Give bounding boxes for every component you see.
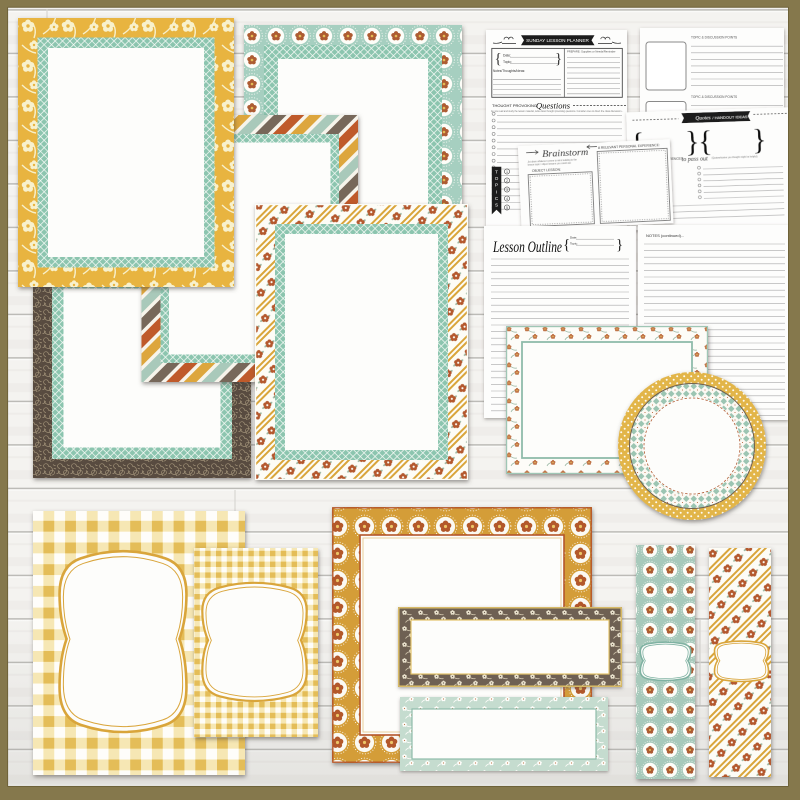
svg-text:TOPIC & DISCUSSION POINTS: TOPIC & DISCUSSION POINTS xyxy=(691,95,737,99)
svg-text:{: { xyxy=(698,125,713,158)
svg-text:Date:: Date: xyxy=(570,236,577,240)
svg-text:to pass out: to pass out xyxy=(682,156,709,163)
svg-text:As you read and study the less: As you read and study the lesson materia… xyxy=(491,110,624,113)
svg-text:SUNDAY LESSON PLANNER: SUNDAY LESSON PLANNER xyxy=(526,38,589,43)
svg-text:Questions: Questions xyxy=(536,101,571,111)
svg-text:Topic:: Topic: xyxy=(570,242,578,246)
svg-text:Lesson Outline: Lesson Outline xyxy=(492,239,562,256)
svg-text:TOPIC & DISCUSSION POINTS: TOPIC & DISCUSSION POINTS xyxy=(691,36,737,40)
svg-text:}: } xyxy=(752,123,767,156)
svg-text:THOUGHT PROVOKING: THOUGHT PROVOKING xyxy=(492,103,537,108)
svg-text:4: 4 xyxy=(506,197,508,201)
svg-text:}: } xyxy=(555,51,562,67)
svg-text:T: T xyxy=(495,170,498,175)
svg-text:S: S xyxy=(495,203,498,208)
svg-text:Brainstorm: Brainstorm xyxy=(542,147,589,159)
svg-text:NOTES (continued)...: NOTES (continued)... xyxy=(646,233,684,238)
svg-text:Notes/Thoughts/Ideas:: Notes/Thoughts/Ideas: xyxy=(493,69,525,73)
svg-text:5: 5 xyxy=(506,206,508,210)
svg-text:Date:: Date: xyxy=(503,54,511,58)
svg-text:Topic:: Topic: xyxy=(503,60,512,64)
svg-text:{: { xyxy=(495,51,502,67)
svg-text:O: O xyxy=(495,176,499,181)
svg-text:2: 2 xyxy=(506,179,508,183)
svg-text:3: 3 xyxy=(506,188,508,192)
svg-text:Quotes: Quotes xyxy=(695,115,710,121)
svg-text:}: } xyxy=(616,237,623,253)
svg-text:I: I xyxy=(496,189,497,194)
svg-text:1: 1 xyxy=(506,170,508,174)
svg-text:PREPARE: Supplies or Needs/Rem: PREPARE: Supplies or Needs/Reminder xyxy=(567,49,616,53)
svg-text:P: P xyxy=(495,183,498,188)
